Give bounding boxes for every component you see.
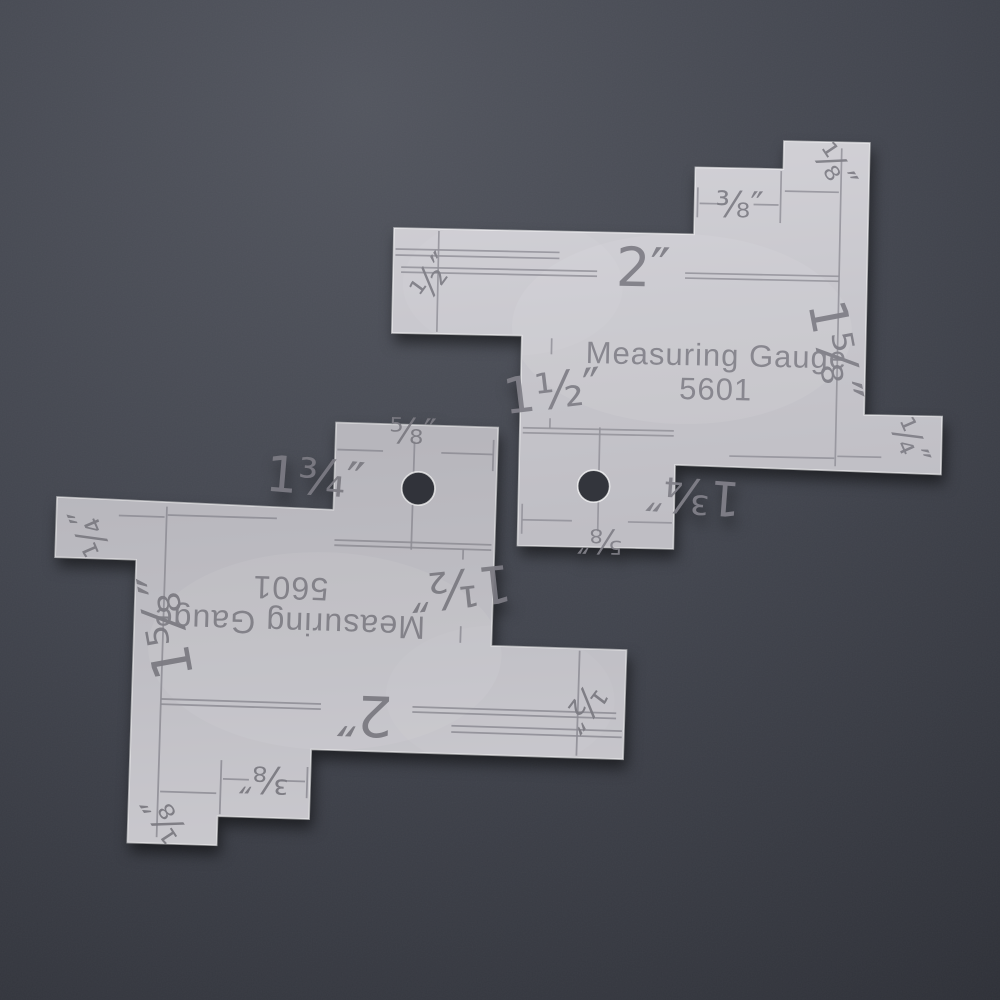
photo-canvas: ½″ 2″ ⅜″ ⅛″ 1⅝″ 1½″ 1¾″ ⅝″ ¼″ Measuring … — [0, 0, 1000, 1000]
product-photo: ½″ 2″ ⅜″ ⅛″ 1⅝″ 1½″ 1¾″ ⅝″ ¼″ Measuring … — [0, 0, 1000, 1000]
